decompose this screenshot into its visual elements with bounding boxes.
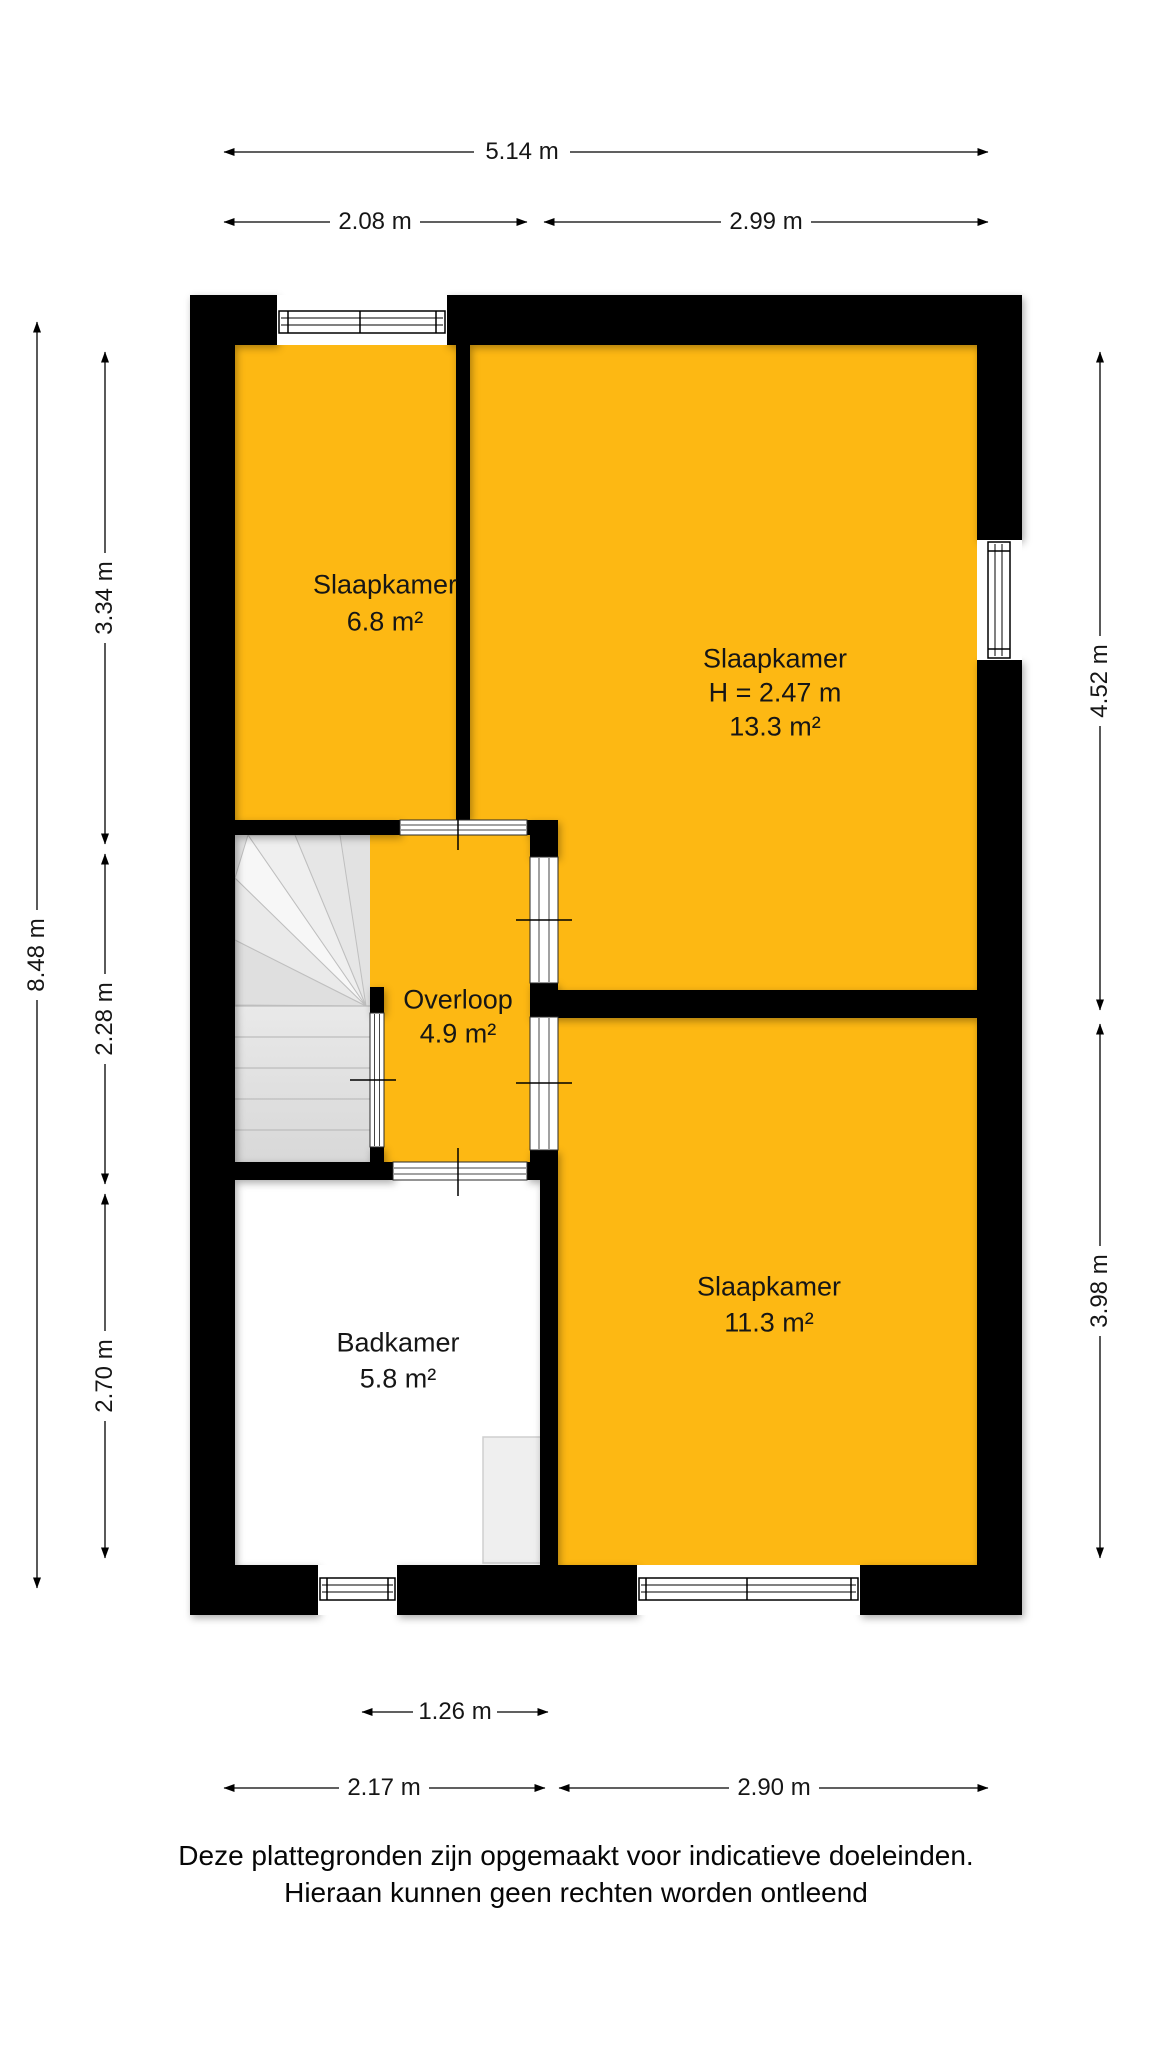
room-area-slaapkamer3: 11.3 m² <box>724 1308 814 1339</box>
wall-landing-right-seg1 <box>530 835 558 857</box>
wall-right-lower <box>977 660 1022 1615</box>
wall-bottom-seg2 <box>397 1565 637 1615</box>
door-opening-icon <box>400 820 527 835</box>
door-opening-icon <box>393 1162 527 1180</box>
staircase <box>235 835 370 1162</box>
room-height-slaapkamer2: H = 2.47 m <box>709 678 842 709</box>
wall-stair-stub-top <box>370 987 384 1013</box>
wall-bathroom-top-seg2 <box>527 1162 558 1180</box>
window-icon <box>637 1565 860 1615</box>
wall-top-right-seg <box>447 295 1022 345</box>
dim-left-middle: 2.28 m <box>91 982 119 1055</box>
wall-bathroom-top-seg1 <box>235 1162 393 1180</box>
dim-right-bottom: 3.98 m <box>1086 1254 1114 1327</box>
dim-bottom-opening: 1.26 m <box>418 1698 491 1726</box>
dim-left-total: 8.48 m <box>23 918 51 991</box>
floorplan-page: Slaapkamer 6.8 m² Slaapkamer H = 2.47 m … <box>0 0 1152 2048</box>
wall-bedroom-divider <box>456 345 470 820</box>
dim-right-top: 4.52 m <box>1086 644 1114 717</box>
window-icon <box>318 1565 397 1615</box>
room-area-slaapkamer1: 6.8 m² <box>347 607 424 638</box>
room-label-slaapkamer1: Slaapkamer <box>313 570 457 601</box>
room-area-slaapkamer2: 13.3 m² <box>729 712 821 743</box>
wall-landing-top-seg1 <box>235 820 400 835</box>
wall-landing-top-corner <box>527 820 558 835</box>
dim-top-right: 2.99 m <box>729 208 802 236</box>
room-label-slaapkamer2: Slaapkamer <box>703 644 847 675</box>
room-label-slaapkamer3: Slaapkamer <box>697 1272 841 1303</box>
wall-bathroom-right <box>540 1180 558 1565</box>
room-label-badkamer: Badkamer <box>336 1328 459 1359</box>
dim-top-left: 2.08 m <box>338 208 411 236</box>
dim-left-bottom: 2.70 m <box>91 1339 119 1412</box>
window-icon <box>277 295 447 345</box>
wall-bedrooms-h-divider <box>530 990 977 1018</box>
window-icon <box>977 540 1022 660</box>
dim-bottom-right: 2.90 m <box>737 1774 810 1802</box>
disclaimer-line2: Hieraan kunnen geen rechten worden ontle… <box>284 1877 868 1909</box>
dim-top-total: 5.14 m <box>485 138 558 166</box>
wall-left <box>190 295 235 1615</box>
dim-bottom-left: 2.17 m <box>347 1774 420 1802</box>
disclaimer-line1: Deze plattegronden zijn opgemaakt voor i… <box>178 1840 973 1872</box>
room-area-badkamer: 5.8 m² <box>360 1364 437 1395</box>
wall-bottom-seg3 <box>860 1565 1022 1615</box>
dim-left-top: 3.34 m <box>91 561 119 634</box>
floorplan-canvas <box>0 0 1152 2048</box>
wall-right-upper <box>977 295 1022 540</box>
room-label-overloop: Overloop <box>403 985 513 1016</box>
shower-fixture <box>483 1437 547 1563</box>
wall-stair-stub-bottom <box>370 1147 384 1162</box>
room-area-overloop: 4.9 m² <box>420 1019 497 1050</box>
wall-bottom-seg1 <box>190 1565 318 1615</box>
